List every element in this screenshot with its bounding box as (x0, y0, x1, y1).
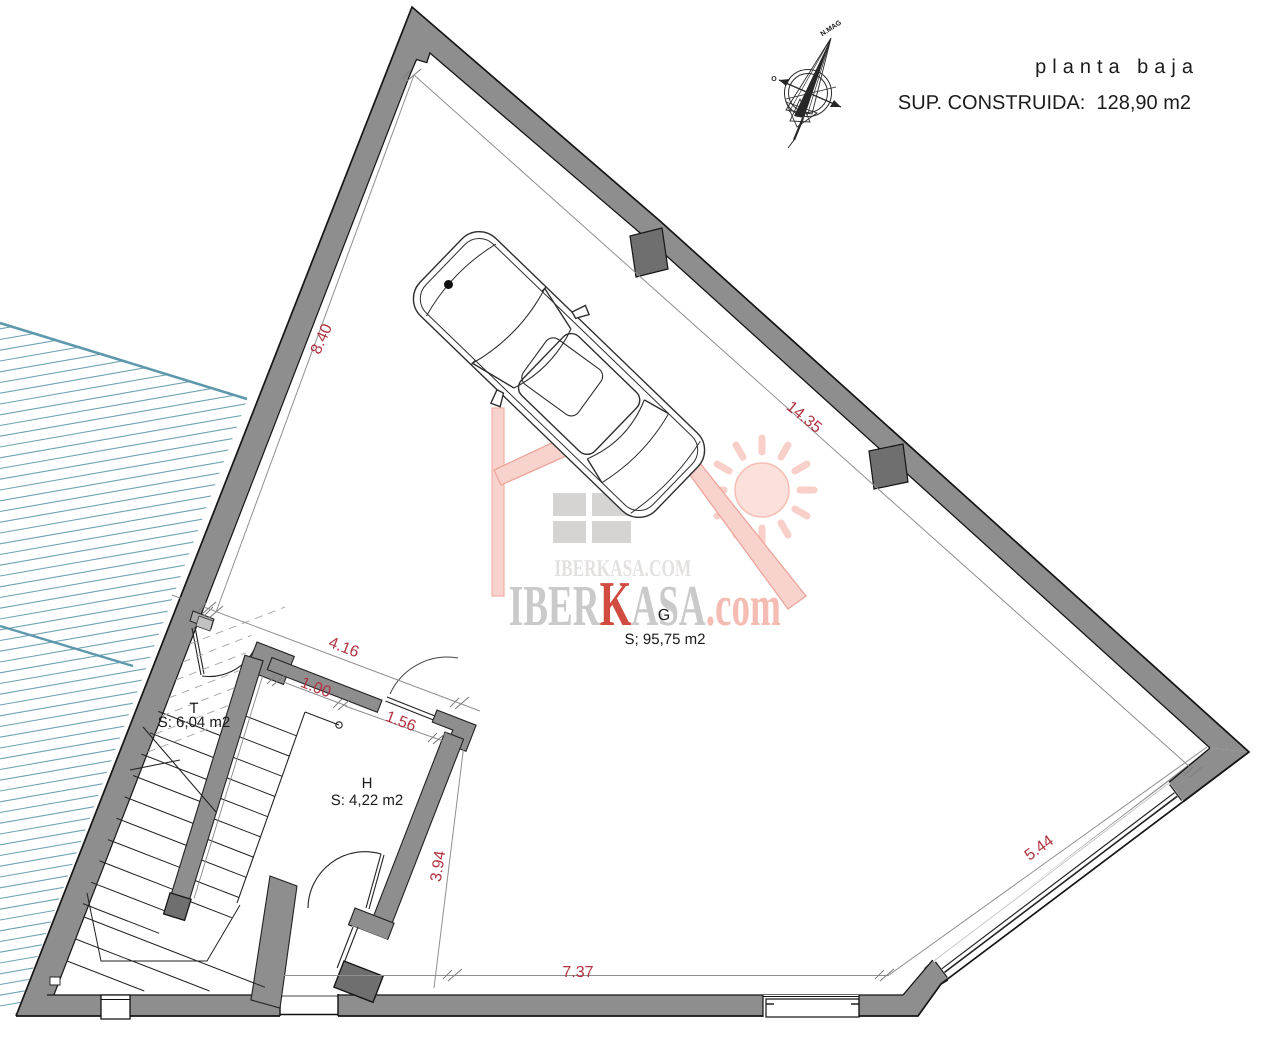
svg-text:S: 6,04 m2: S: 6,04 m2 (158, 714, 231, 731)
svg-text:planta baja: planta baja (1035, 56, 1199, 78)
svg-text:S: 4,22 m2: S: 4,22 m2 (331, 792, 404, 809)
svg-text:SUP. CONSTRUIDA: 128,90 m2: SUP. CONSTRUIDA: 128,90 m2 (898, 92, 1191, 114)
svg-text:H: H (362, 775, 373, 792)
svg-text:G: G (658, 607, 670, 624)
svg-text:S; 95,75 m2: S; 95,75 m2 (625, 631, 706, 648)
svg-text:O: O (771, 76, 777, 83)
svg-text:7.37: 7.37 (562, 964, 593, 981)
svg-text:IBERKASA.com: IBERKASA.com (509, 568, 781, 639)
